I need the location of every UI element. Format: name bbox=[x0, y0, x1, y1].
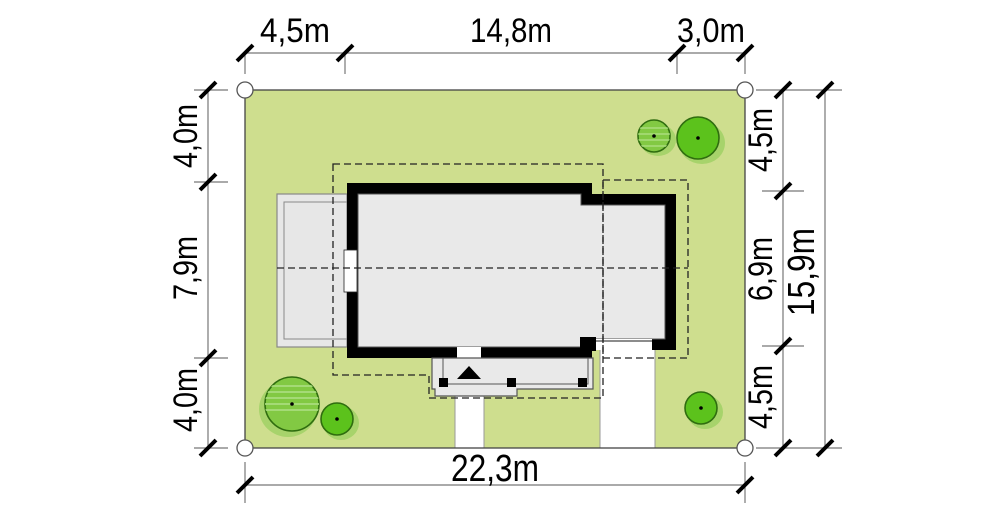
corner-marker-bottom-right bbox=[737, 440, 753, 456]
dim-label-right-total: 15,9m bbox=[781, 228, 823, 316]
wall-pillar bbox=[580, 337, 596, 351]
porch-post-right bbox=[578, 378, 587, 387]
corner-marker-top-left bbox=[237, 82, 253, 98]
corner-marker-bottom-left bbox=[237, 440, 253, 456]
house-interior bbox=[358, 194, 665, 347]
front-door bbox=[457, 347, 481, 359]
tree-center-dot bbox=[290, 402, 294, 406]
dim-label-right-middle: 6,9m bbox=[742, 237, 780, 301]
dim-label-bottom-total: 22,3m bbox=[451, 448, 539, 490]
dim-label-left-bottom: 4,0m bbox=[167, 368, 205, 432]
terrace-outer bbox=[277, 194, 347, 347]
tree-center-dot bbox=[699, 406, 703, 410]
site-plan-page: 4,5m 14,8m 3,0m 4,0m 7,9m 4,0m 4,5m 6,9m… bbox=[0, 0, 1000, 515]
corner-marker-top-right bbox=[737, 82, 753, 98]
porch-post-middle bbox=[507, 378, 516, 387]
window-left bbox=[344, 250, 357, 292]
terrace bbox=[277, 194, 347, 347]
dim-label-left-middle: 7,9m bbox=[167, 236, 205, 300]
dim-label-top-left: 4,5m bbox=[260, 12, 330, 50]
dim-label-top-middle: 14,8m bbox=[470, 12, 552, 50]
walkway bbox=[455, 396, 484, 448]
tree-center-dot bbox=[335, 417, 339, 421]
tree-center-dot bbox=[696, 136, 700, 140]
tree-center-dot bbox=[652, 134, 656, 138]
site-plan-drawing: 4,5m 14,8m 3,0m 4,0m 7,9m 4,0m 4,5m 6,9m… bbox=[0, 0, 1000, 515]
dim-label-left-top: 4,0m bbox=[167, 104, 205, 168]
dim-label-right-bottom: 4,5m bbox=[742, 365, 780, 429]
dim-label-top-right: 3,0m bbox=[677, 12, 745, 50]
driveway bbox=[600, 339, 655, 448]
porch-post-left bbox=[439, 378, 448, 387]
house bbox=[344, 183, 676, 359]
dim-label-right-top: 4,5m bbox=[742, 108, 780, 172]
